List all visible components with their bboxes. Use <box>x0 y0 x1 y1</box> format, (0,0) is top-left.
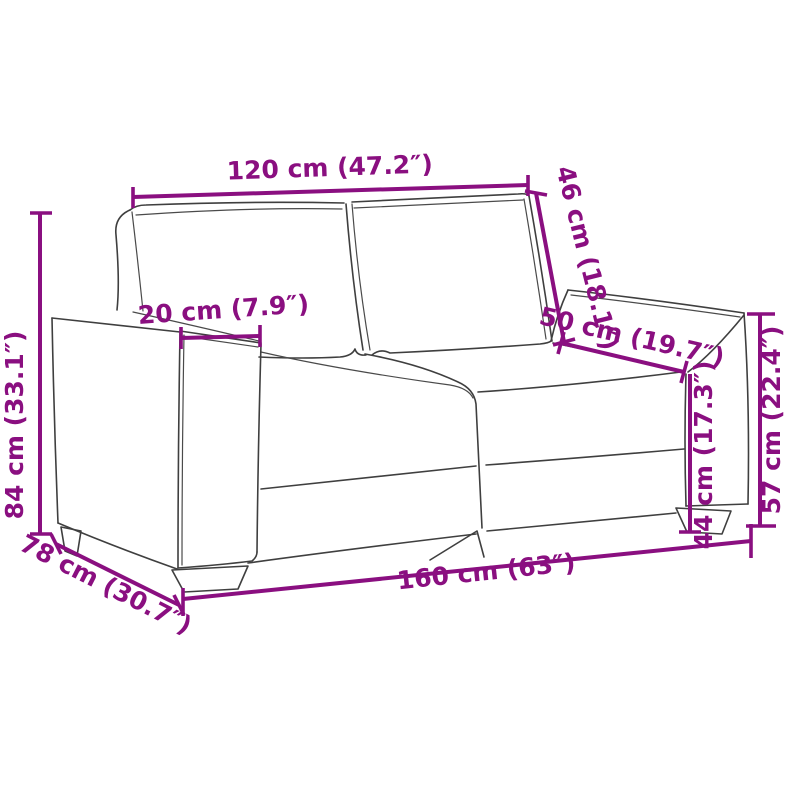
dim-armrest-height: 57 cm (22.4″) <box>746 314 786 526</box>
product-dimension-diagram: 120 cm (47.2″) 46 cm (18.1″) 20 cm (7.9″… <box>0 0 800 800</box>
sofa-drawing <box>52 194 749 592</box>
dim-total-width-label: 160 cm (63″) <box>395 548 576 596</box>
dim-seat-height-label: 44 cm (17.3″) <box>689 361 718 550</box>
dim-total-depth-label: 78 cm (30.7″) <box>15 529 196 641</box>
diagram-canvas: 120 cm (47.2″) 46 cm (18.1″) 20 cm (7.9″… <box>0 0 800 800</box>
dim-total-height-label: 84 cm (33.1″) <box>0 331 29 520</box>
dim-total-depth: 78 cm (30.7″) <box>15 529 196 641</box>
dim-total-height: 84 cm (33.1″) <box>0 213 52 534</box>
dim-armrest-width: 20 cm (7.9″) <box>137 289 310 349</box>
dim-armrest-height-label: 57 cm (22.4″) <box>757 326 786 515</box>
dim-armrest-width-label: 20 cm (7.9″) <box>137 289 310 330</box>
sofa-left-armrest <box>52 312 261 592</box>
sofa-seat <box>248 352 684 563</box>
dim-back-width-label: 120 cm (47.2″) <box>226 149 433 185</box>
dim-back-width: 120 cm (47.2″) <box>133 149 528 208</box>
